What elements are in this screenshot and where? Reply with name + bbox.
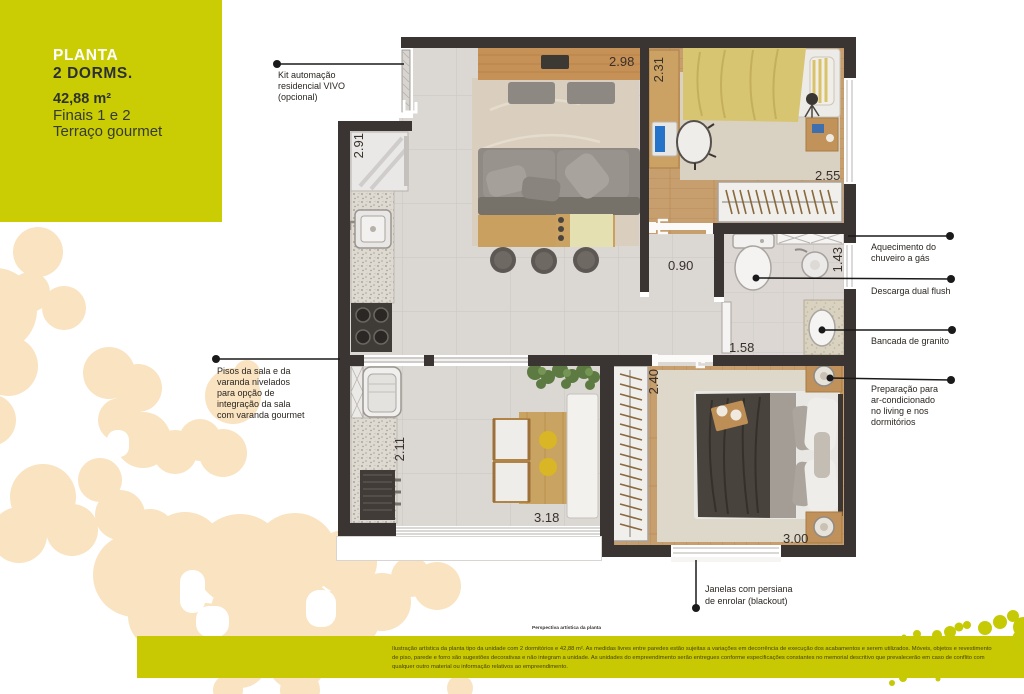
svg-text:de piso, parede e forro são su: de piso, parede e forro são sugestões de… <box>392 655 985 661</box>
svg-text:Preparação para: Preparação para <box>871 384 938 394</box>
svg-text:Perspectiva artística da plant: Perspectiva artística da planta <box>532 625 601 631</box>
svg-text:PLANTA: PLANTA <box>53 47 118 64</box>
svg-text:3.18: 3.18 <box>534 510 559 525</box>
svg-text:2.11: 2.11 <box>392 437 407 461</box>
svg-text:(opcional): (opcional) <box>278 92 318 102</box>
svg-text:para opção de: para opção de <box>217 388 275 398</box>
svg-text:2.98: 2.98 <box>609 54 634 69</box>
svg-text:2.91: 2.91 <box>351 133 366 158</box>
svg-text:integração da sala: integração da sala <box>217 399 291 409</box>
svg-text:Descarga dual flush: Descarga dual flush <box>871 286 951 296</box>
svg-text:no living e nos: no living e nos <box>871 406 929 416</box>
svg-text:1.43: 1.43 <box>830 247 845 272</box>
svg-text:Aquecimento do: Aquecimento do <box>871 242 936 252</box>
svg-text:Kit automação: Kit automação <box>278 70 336 80</box>
svg-text:ar-condicionado: ar-condicionado <box>871 395 935 405</box>
svg-text:2.55: 2.55 <box>815 168 840 183</box>
svg-text:Janelas com persiana: Janelas com persiana <box>705 584 793 594</box>
svg-text:chuveiro a gás: chuveiro a gás <box>871 253 930 263</box>
svg-text:2.40: 2.40 <box>646 369 661 394</box>
svg-text:42,88 m²: 42,88 m² <box>53 91 111 107</box>
svg-text:qualquer outro material ou inf: qualquer outro material ou informação re… <box>392 664 568 670</box>
svg-text:Pisos da sala e da: Pisos da sala e da <box>217 366 291 376</box>
svg-text:varanda nivelados: varanda nivelados <box>217 377 291 387</box>
svg-text:2.31: 2.31 <box>651 57 666 82</box>
svg-text:Terraço gourmet: Terraço gourmet <box>53 123 163 140</box>
svg-text:de enrolar (blackout): de enrolar (blackout) <box>705 596 788 606</box>
svg-text:dormitórios: dormitórios <box>871 417 916 427</box>
svg-text:residencial VIVO: residencial VIVO <box>278 81 345 91</box>
svg-text:1.58: 1.58 <box>729 340 754 355</box>
svg-text:Finais 1 e 2: Finais 1 e 2 <box>53 107 131 124</box>
svg-text:2 DORMS.: 2 DORMS. <box>53 65 133 82</box>
svg-text:0.90: 0.90 <box>668 258 693 273</box>
svg-text:Bancada de granito: Bancada de granito <box>871 336 949 346</box>
svg-text:3.00: 3.00 <box>783 531 808 546</box>
svg-text:com varanda gourmet: com varanda gourmet <box>217 410 305 420</box>
svg-text:Ilustração artística da planta: Ilustração artística da planta tipo da u… <box>392 646 992 652</box>
